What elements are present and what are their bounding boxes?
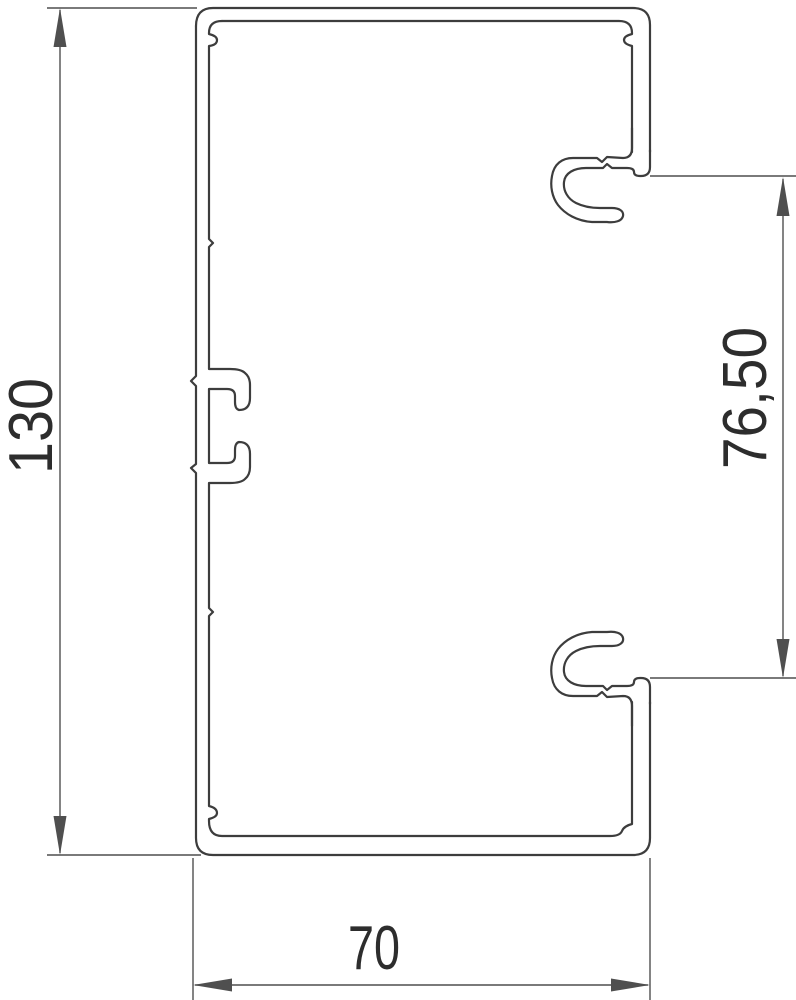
height-arrow-up xyxy=(54,8,67,47)
height-arrow-down xyxy=(54,816,67,855)
cover-hook-top xyxy=(551,128,650,222)
profile-inner-contour xyxy=(209,21,632,836)
opening-dimension-label: 76,50 xyxy=(711,327,780,469)
dimension-arrows-group xyxy=(54,8,790,992)
dimension-labels-group: 130 76,50 70 xyxy=(0,327,780,983)
opening-arrow-up xyxy=(777,177,790,216)
profile-inner-top-right xyxy=(222,21,632,152)
height-dimension-label: 130 xyxy=(0,378,66,474)
opening-arrow-down xyxy=(777,639,790,678)
drawing-canvas: 130 76,50 70 xyxy=(0,0,796,1000)
width-arrow-left xyxy=(193,979,232,992)
profile-outline-group xyxy=(191,8,650,855)
profile-outer-top xyxy=(196,8,650,152)
cover-hook-bottom xyxy=(551,632,650,726)
width-dimension-label: 70 xyxy=(348,914,400,983)
dimension-lines-group xyxy=(47,8,796,1000)
trunking-cross-section-drawing: 130 76,50 70 xyxy=(0,0,796,1000)
profile-outer-shell xyxy=(191,26,650,855)
width-arrow-right xyxy=(611,979,650,992)
